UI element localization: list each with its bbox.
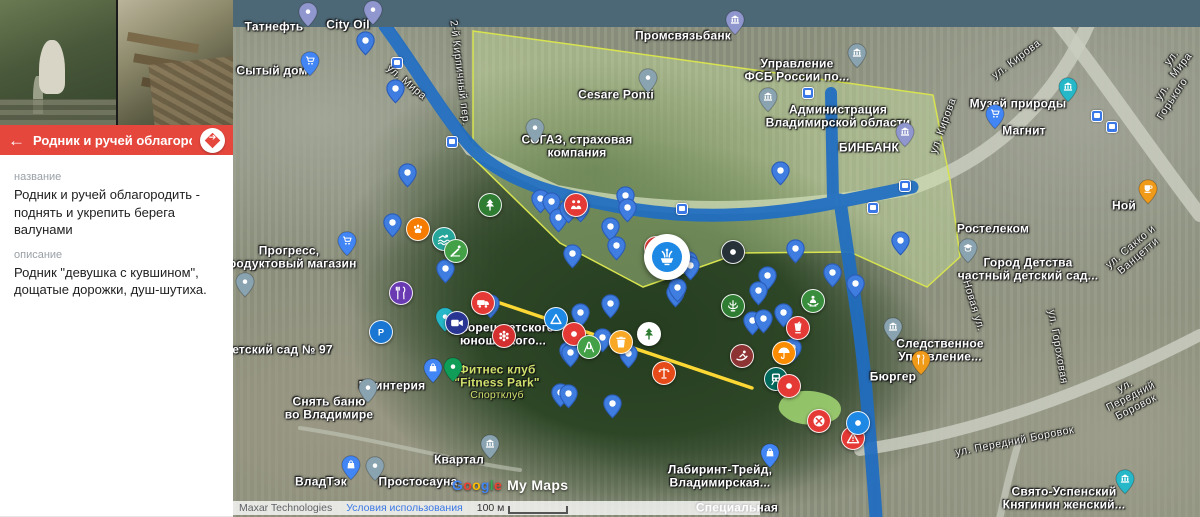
transit-stop-icon xyxy=(802,87,814,99)
government-marker[interactable] xyxy=(883,317,903,343)
map-pin[interactable] xyxy=(563,244,582,269)
map-data-credit: Maxar Technologies xyxy=(239,502,332,514)
google-logo: Google xyxy=(452,477,502,493)
poi-marker[interactable] xyxy=(235,272,255,298)
transit-stop-icon xyxy=(676,203,688,215)
shop-marker[interactable] xyxy=(341,455,361,481)
wooden-walkway-photo[interactable] xyxy=(118,0,234,125)
bank-marker[interactable] xyxy=(895,122,915,148)
store-marker[interactable] xyxy=(337,231,357,257)
map-pin[interactable] xyxy=(786,239,805,264)
restaurant-marker[interactable] xyxy=(911,350,931,376)
video-marker[interactable] xyxy=(445,311,469,335)
fitness-marker[interactable] xyxy=(443,357,463,383)
poi-marker[interactable] xyxy=(358,378,378,404)
poi-label: Следственное Управление... xyxy=(896,338,984,365)
transit-stop-icon xyxy=(1106,121,1118,133)
map-pin[interactable] xyxy=(668,278,687,303)
tree-marker[interactable] xyxy=(478,193,502,217)
poi-label: Спортклуб xyxy=(470,390,524,402)
map-pin[interactable] xyxy=(771,161,790,186)
map-pin[interactable] xyxy=(603,394,622,419)
my-maps-screenshot: ТатнефтьCity OilСытый домПрогресс, проду… xyxy=(0,0,1200,517)
map-pin[interactable] xyxy=(749,281,768,306)
meeting-point-marker[interactable] xyxy=(564,193,588,217)
attribution-bar: Maxar Technologies Условия использования… xyxy=(233,501,760,515)
poi-label: Сытый дом xyxy=(236,64,307,77)
poi-label: Свято-Успенский Княгинин женский... xyxy=(1003,486,1126,513)
directions-button[interactable]: ➔ xyxy=(200,128,225,153)
government-marker[interactable] xyxy=(758,87,778,113)
poi-label: Детский сад № 97 xyxy=(223,343,332,356)
description-field-value: Родник "девушка с кувшином", дощатые дор… xyxy=(14,264,219,299)
place-info-panel: ← Родник и ручей облагородить ... ➔ назв… xyxy=(0,0,233,517)
lamp-marker[interactable] xyxy=(652,361,676,385)
selected-spring-marker[interactable] xyxy=(644,234,690,280)
poi-marker[interactable] xyxy=(525,118,545,144)
shop-marker[interactable] xyxy=(760,443,780,469)
directions-arrow-icon: ➔ xyxy=(200,133,225,142)
poi-label: ВладТэк xyxy=(295,475,347,488)
terms-link[interactable]: Условия использования xyxy=(346,502,463,514)
kindergarten-marker[interactable] xyxy=(958,238,978,264)
back-arrow-icon[interactable]: ← xyxy=(8,132,25,149)
poi-marker[interactable] xyxy=(638,68,658,94)
bank-marker[interactable] xyxy=(725,10,745,36)
map-pin[interactable] xyxy=(846,274,865,299)
slide-marker[interactable] xyxy=(444,239,468,263)
restaurant-marker[interactable] xyxy=(389,281,413,305)
store-marker[interactable] xyxy=(985,104,1005,130)
transit-stop-icon xyxy=(899,180,911,192)
map-pin[interactable] xyxy=(559,384,578,409)
camper-marker[interactable] xyxy=(471,291,495,315)
name-field-label: название xyxy=(14,171,219,183)
place-details: название Родник и ручей облагородить - п… xyxy=(0,155,233,517)
church-marker[interactable] xyxy=(1115,469,1135,495)
map-pin[interactable] xyxy=(754,309,773,334)
spring-statue-photo[interactable] xyxy=(0,0,116,125)
scale-bar xyxy=(508,506,568,514)
poi-label: Квартал xyxy=(434,453,484,466)
map-pin[interactable] xyxy=(398,163,417,188)
map-pin[interactable] xyxy=(601,294,620,319)
government-marker[interactable] xyxy=(847,43,867,69)
scale-label: 100 м xyxy=(477,502,505,514)
name-field-value: Родник и ручей облагородить - поднять и … xyxy=(14,186,219,239)
trash-marker[interactable] xyxy=(609,330,633,354)
shop-marker[interactable] xyxy=(423,358,443,384)
gas-station-marker[interactable] xyxy=(298,2,318,28)
google-my-maps-watermark: GoogleMy Maps xyxy=(452,477,568,493)
red-marker[interactable] xyxy=(777,374,801,398)
place-photos xyxy=(0,0,233,125)
blue-dot-marker[interactable] xyxy=(846,411,870,435)
map-pin[interactable] xyxy=(356,31,375,56)
poi-label: Бюргер xyxy=(870,370,916,383)
map-pin[interactable] xyxy=(823,263,842,288)
map-pin[interactable] xyxy=(383,213,402,238)
poi-label: Магнит xyxy=(1002,124,1046,137)
poi-label: Город Детства частный детский сад... xyxy=(958,257,1099,284)
poi-label: Лабиринт-Трейд, Владимирская... xyxy=(668,464,772,491)
poi-label: БИНБАНК xyxy=(839,141,899,154)
museum-marker[interactable] xyxy=(480,434,500,460)
sled-marker[interactable] xyxy=(730,344,754,368)
map-pin[interactable] xyxy=(386,79,405,104)
carousel-marker[interactable] xyxy=(492,324,516,348)
poi-label: Фитнес клуб "Fitness Park" xyxy=(454,364,540,391)
animals-marker[interactable] xyxy=(406,217,430,241)
poi-label: Управление ФСБ России по... xyxy=(745,58,850,85)
umbrella-marker[interactable] xyxy=(772,341,796,365)
svg-text:P: P xyxy=(378,328,384,338)
map-pin[interactable] xyxy=(436,259,455,284)
cascade-fountain-marker[interactable] xyxy=(721,294,745,318)
panel-header: ← Родник и ручей облагородить ... ➔ xyxy=(0,125,233,155)
poi-label: Промсвязьбанк xyxy=(635,29,731,42)
white-tree-marker[interactable] xyxy=(637,322,661,346)
map-pin[interactable] xyxy=(618,198,637,223)
transit-stop-icon xyxy=(1091,110,1103,122)
description-field-label: описание xyxy=(14,249,219,261)
poi-label: Татнефть xyxy=(245,20,304,33)
poi-label: Администрация Владимирской области xyxy=(766,104,911,131)
store-marker[interactable] xyxy=(300,51,320,77)
poi-marker[interactable] xyxy=(365,456,385,482)
map-pin[interactable] xyxy=(607,236,626,261)
parking-marker[interactable]: P xyxy=(369,320,393,344)
my-maps-label: My Maps xyxy=(507,477,568,493)
food-drink-marker[interactable] xyxy=(786,316,810,340)
poi-label: Ной xyxy=(1112,199,1136,212)
map-pin[interactable] xyxy=(891,231,910,256)
cafe-marker[interactable] xyxy=(1138,179,1158,205)
poi-label: Ростелеком xyxy=(957,222,1029,235)
transit-stop-icon xyxy=(446,136,458,148)
transit-stop-icon xyxy=(867,202,879,214)
black-marker[interactable] xyxy=(721,240,745,264)
poi-label: Простосауна xyxy=(379,475,458,488)
picnic-marker[interactable] xyxy=(807,409,831,433)
yoga-marker[interactable] xyxy=(801,289,825,313)
swing-marker[interactable] xyxy=(577,335,601,359)
gas-station-marker[interactable] xyxy=(363,0,383,26)
place-title: Родник и ручей облагородить ... xyxy=(33,133,192,148)
museum-marker[interactable] xyxy=(1058,77,1078,103)
